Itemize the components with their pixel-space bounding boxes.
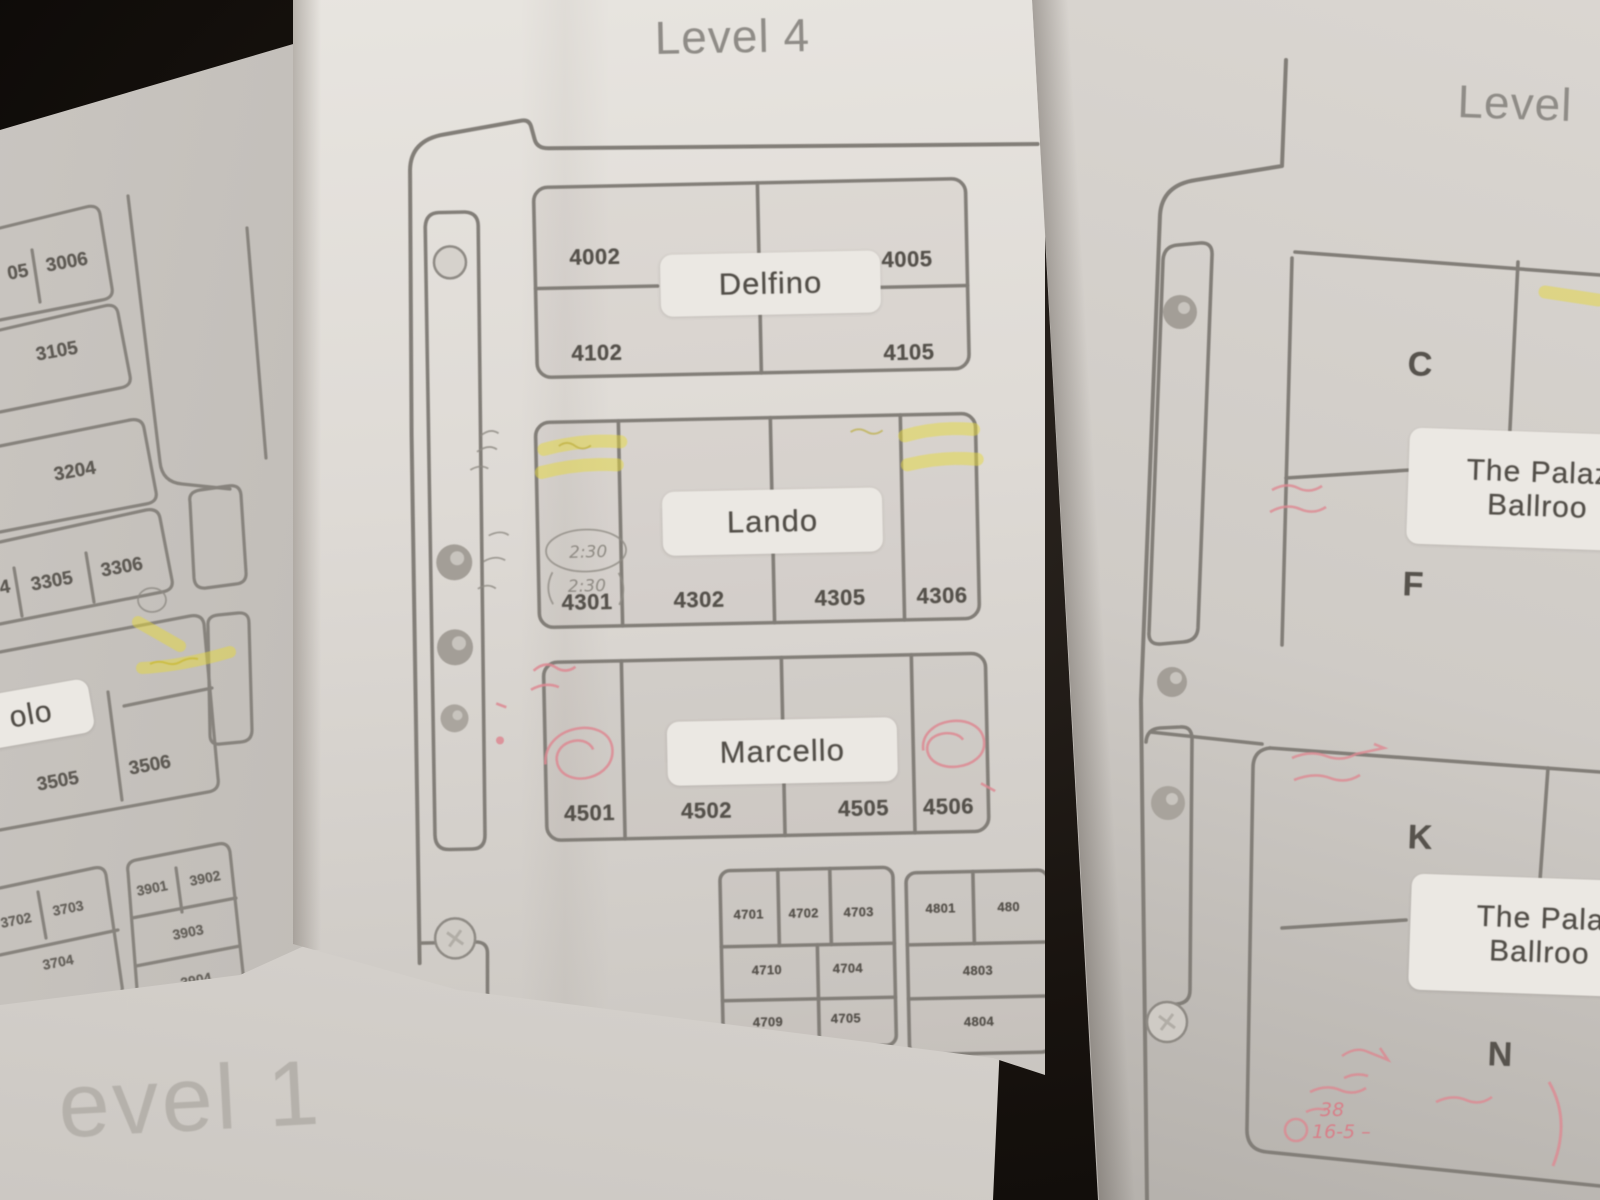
room-4102-label: 4102 [571,340,622,367]
room-4105-label: 4105 [883,339,934,366]
yellow-highlighter-mark [1545,292,1598,300]
room-4502-label: 4502 [681,798,732,825]
red-annotation-1: 16-5 – [1312,1121,1371,1143]
room-C-label: C [1407,345,1433,385]
room-name-olo: olo [7,695,55,736]
room-4501-label: 4501 [564,800,615,827]
room-F-label: F [1402,565,1424,605]
room-4302-label: 4302 [673,587,724,614]
room-K-label: K [1407,818,1433,858]
pencil-annotation-1: 2:30 [569,542,608,563]
room-4002-label: 4002 [569,244,620,271]
room-4702-label: 4702 [788,905,818,921]
ballroom-pill-bottom: The Pala Ballroo [1408,873,1600,998]
level1-title: evel 1 [56,1041,325,1160]
room-4802-partial-label: 480 [997,899,1020,914]
ballroom-top-line1: The Palaz [1466,453,1600,493]
room-4803-label: 4803 [963,963,993,979]
room-4704-label: 4704 [833,960,863,976]
room-4305-label: 4305 [814,585,865,612]
corridor-icon [434,246,467,279]
delfino-name: Delfino [718,265,822,303]
ballroom-top-line2: Ballroo [1487,488,1589,526]
red-annotation-2: 38 [1320,1099,1344,1121]
room-3005-label: 05 [6,260,31,285]
room-4703-label: 4703 [843,904,873,920]
room-4705-label: 4705 [831,1010,861,1026]
room-4701-label: 4701 [733,906,763,922]
delfino-pill: Delfino [660,250,881,317]
room-N-label: N [1487,1035,1513,1075]
room-4804-label: 4804 [964,1014,994,1030]
room-4801-label: 4801 [925,900,955,916]
room-4301-label: 4301 [561,589,612,616]
room-4506-label: 4506 [923,793,974,820]
room-4005-label: 4005 [881,246,932,273]
marcello-name: Marcello [719,732,845,771]
room-4710-label: 4710 [752,962,782,978]
photo-of-floorplan-sheets: 05 3006 3105 3204 4 3305 3306 olo 3505 3… [0,0,1600,1200]
room-4709-label: 4709 [753,1014,783,1030]
lando-pill: Lando [662,487,883,556]
ballroom-bottom-line2: Ballroo [1489,934,1591,972]
room-4505-label: 4505 [838,795,889,822]
ballroom-bottom-line1: The Pala [1476,899,1600,938]
lando-name: Lando [727,503,819,541]
ballroom-pill-top: The Palaz Ballroo [1406,427,1600,552]
room-4306-label: 4306 [916,583,967,610]
marcello-pill: Marcello [667,717,898,786]
left-sheet-annotations [138,588,230,668]
